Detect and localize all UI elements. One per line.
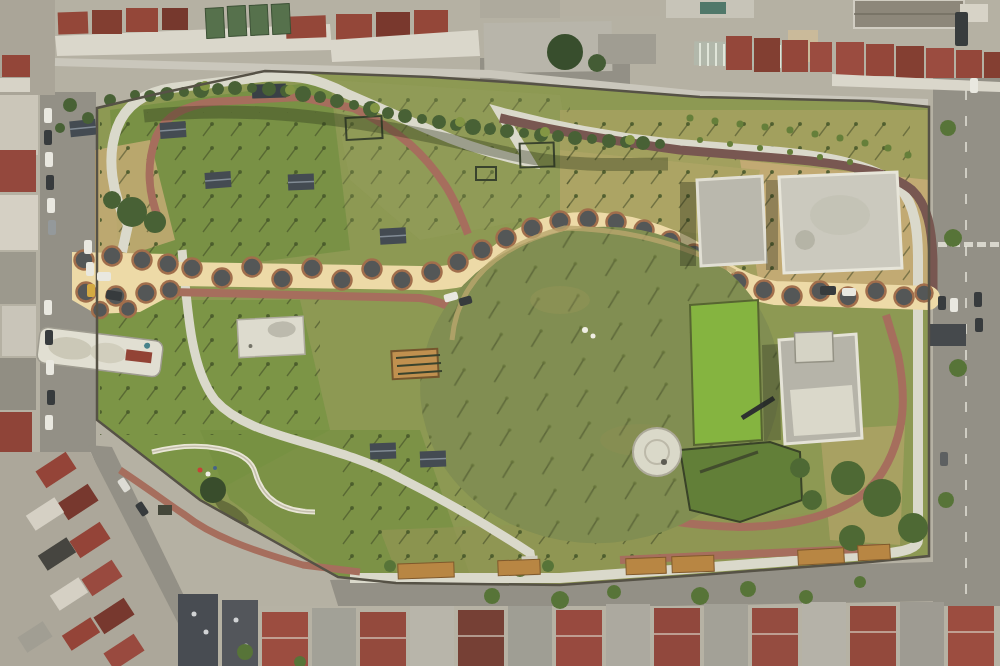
aerial-park-scene xyxy=(0,0,1000,666)
sunlight-overlay xyxy=(0,0,1000,666)
aerial-park-photo xyxy=(0,0,1000,666)
